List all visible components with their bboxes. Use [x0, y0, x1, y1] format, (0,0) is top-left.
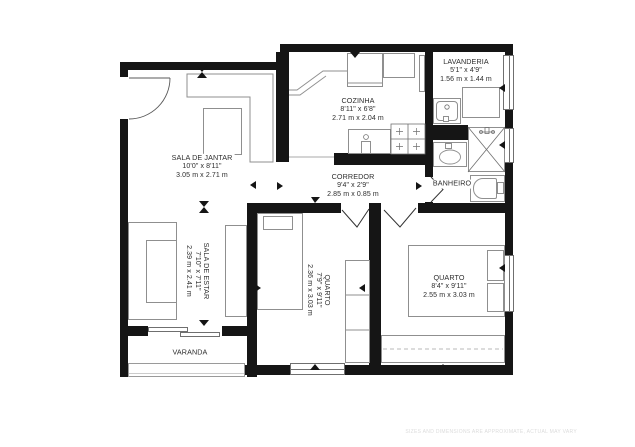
- room-name: QUARTO: [423, 274, 475, 283]
- room-size-metric: 2.71 m x 2.04 m: [332, 114, 384, 123]
- room-label-lavanderia: LAVANDERIA 5'1" x 4'9" 1.56 m x 1.44 m: [438, 58, 494, 84]
- room-label-sala-de-jantar: SALA DE JANTAR 10'0" x 8'11" 3.05 m x 2.…: [170, 154, 235, 180]
- plan-detail-layer: [0, 0, 635, 447]
- room-name: COZINHA: [332, 97, 384, 106]
- room-name: BANHEIRO: [433, 180, 471, 189]
- room-size-metric: 3.05 m x 2.71 m: [172, 171, 233, 180]
- bathroom-basin: [440, 150, 461, 164]
- room-name: SALA DE ESTAR: [201, 243, 210, 300]
- kitchen-counter: [289, 71, 382, 95]
- dimension-marker: [121, 52, 505, 370]
- room-size-imperial: 7'10" x 7'11": [193, 243, 202, 300]
- room-name: LAVANDERIA: [440, 58, 492, 67]
- room-size-imperial: 7'9" x 9'11": [314, 264, 323, 316]
- floor-plan: SALA DE JANTAR 10'0" x 8'11" 3.05 m x 2.…: [0, 0, 635, 447]
- room-name: VARANDA: [173, 349, 208, 358]
- room-size-metric: 2.55 m x 3.03 m: [423, 291, 475, 300]
- kitchen-tap: [364, 135, 369, 140]
- disclaimer-text: SIZES AND DIMENSIONS ARE APPROXIMATE, AC…: [405, 429, 577, 435]
- entry-door-arc: [129, 78, 170, 119]
- room-size-imperial: 9'4" x 2'9": [327, 182, 379, 191]
- room-label-corredor: CORREDOR 9'4" x 2'9" 2.85 m x 0.85 m: [325, 173, 381, 199]
- room-size-imperial: 8'11" x 6'8": [332, 106, 384, 115]
- room-name: SALA DE JANTAR: [172, 154, 233, 163]
- room-size-metric: 2.39 m x 2.41 m: [184, 243, 193, 300]
- room-size-metric: 1.56 m x 1.44 m: [440, 75, 492, 84]
- room-size-imperial: 5'1" x 4'9": [440, 67, 492, 76]
- room-name: QUARTO: [322, 264, 331, 316]
- room-label-banheiro: BANHEIRO: [431, 180, 473, 189]
- room-name: CORREDOR: [327, 173, 379, 182]
- room-label-quarto-1: QUARTO 7'9" x 9'11" 2.36 m x 3.03 m: [305, 262, 331, 318]
- room-label-cozinha: COZINHA 8'11" x 6'8" 2.71 m x 2.04 m: [330, 97, 386, 123]
- room-size-metric: 2.85 m x 0.85 m: [327, 190, 379, 199]
- room-label-varanda: VARANDA: [171, 349, 210, 358]
- washer-knob: [445, 105, 449, 109]
- wardrobe-shelves: [345, 295, 370, 330]
- room-label-sala-de-estar: SALA DE ESTAR 7'10" x 7'11" 2.39 m x 2.4…: [184, 241, 210, 302]
- room-size-metric: 2.36 m x 3.03 m: [305, 264, 314, 316]
- stove-icon: [391, 124, 425, 154]
- room-label-quarto-2: QUARTO 8'4" x 9'11" 2.55 m x 3.03 m: [421, 274, 477, 300]
- shower-icon: [468, 127, 505, 172]
- room-size-imperial: 10'0" x 8'11": [172, 163, 233, 172]
- kitchen-cabinet: [187, 74, 273, 162]
- room-size-imperial: 8'4" x 9'11": [423, 283, 475, 292]
